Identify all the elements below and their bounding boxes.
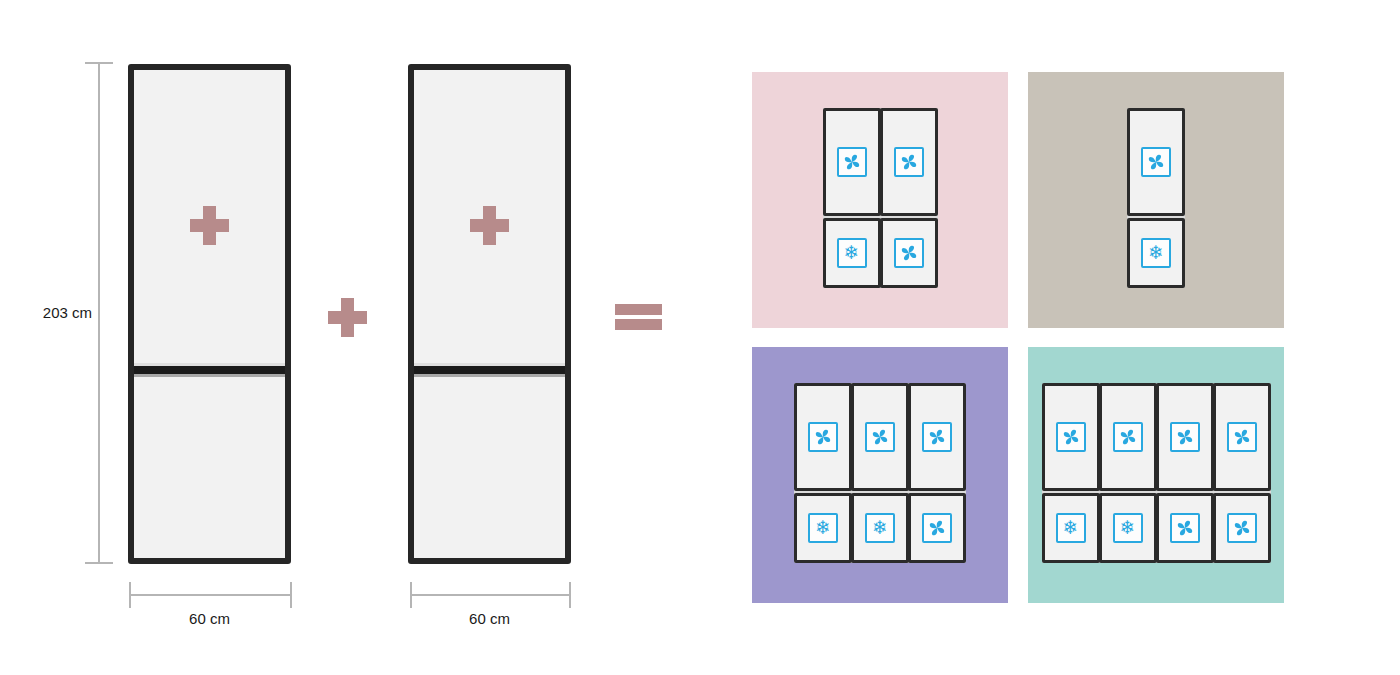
snowflake-glyph: ❄ [815,518,831,537]
fridge-door [1156,383,1214,491]
fan-icon [808,422,838,452]
snowflake-icon: ❄ [808,513,838,543]
snowflake-glyph: ❄ [872,518,888,537]
door-row-bottom: ❄❄ [794,493,966,563]
fridge-1-upper-door [134,70,285,363]
height-dimension-line [98,62,100,564]
fan-icon [922,513,952,543]
fridge-door [880,218,938,288]
fridge-door: ❄ [1042,493,1100,563]
door-row-top [794,383,966,491]
door-row-bottom: ❄ [823,218,938,288]
fridge-door [880,108,938,216]
door-row-bottom: ❄ [1127,218,1185,288]
fridge-door [794,383,852,491]
fridge-door: ❄ [823,218,881,288]
fridge-door: ❄ [851,493,909,563]
fan-icon [1056,422,1086,452]
snowflake-icon: ❄ [865,513,895,543]
fridge-2-divider-band [414,366,565,374]
fan-icon [922,422,952,452]
door-row-top [1127,108,1185,216]
fridge-door [1213,383,1271,491]
result-four-column-combo: ❄❄ [1028,347,1284,603]
fan-icon [1170,513,1200,543]
fridge-door [908,383,966,491]
width-dimension-1-label: 60 cm [128,609,291,629]
fridge-door [1127,108,1185,216]
height-dimension-top-tick [85,62,113,64]
fridge-2-outline [408,64,571,564]
result-two-column-combo: ❄ [752,72,1008,328]
snowflake-glyph: ❄ [1148,243,1164,262]
equals-operator-icon [615,304,662,330]
fan-icon [1227,422,1257,452]
width-dimension-2-label: 60 cm [408,609,571,629]
snowflake-glyph: ❄ [1120,518,1136,537]
fridge-1-lower-door [134,377,285,558]
snowflake-icon: ❄ [837,238,867,268]
fan-icon [1170,422,1200,452]
height-dimension-label: 203 cm [28,303,92,323]
fridge-door [908,493,966,563]
result-two-column-combo-fridge-block: ❄ [823,108,938,288]
fridge-door [851,383,909,491]
fan-icon [1113,422,1143,452]
fridge-2-upper-door [414,70,565,363]
fridge-door [1213,493,1271,563]
snowflake-icon: ❄ [1113,513,1143,543]
width-dimension-2-line [410,594,571,596]
fridge-door [823,108,881,216]
result-four-column-combo-fridge-block: ❄❄ [1042,383,1271,563]
fridge-1-outline [128,64,291,564]
snowflake-glyph: ❄ [1063,518,1079,537]
fridge-2-lower-door [414,377,565,558]
snowflake-icon: ❄ [1141,238,1171,268]
fan-icon [894,147,924,177]
fridge-door [1099,383,1157,491]
fan-icon [894,238,924,268]
width-dimension-1-line [129,594,292,596]
fridge-1-divider-band [134,366,285,374]
fridge-door: ❄ [794,493,852,563]
result-single-column-fridge-block: ❄ [1127,108,1185,288]
plus-operator-icon [328,298,367,337]
snowflake-glyph: ❄ [844,243,860,262]
door-row-bottom: ❄❄ [1042,493,1271,563]
fan-icon [837,147,867,177]
fridge-door: ❄ [1099,493,1157,563]
equals-bar [615,319,662,330]
plus-icon [470,206,509,245]
door-row-top [823,108,938,216]
result-three-column-combo: ❄❄ [752,347,1008,603]
height-dimension-bottom-tick [85,562,113,564]
door-row-top [1042,383,1271,491]
result-single-column: ❄ [1028,72,1284,328]
fridge-door: ❄ [1127,218,1185,288]
result-three-column-combo-fridge-block: ❄❄ [794,383,966,563]
snowflake-icon: ❄ [1056,513,1086,543]
equals-bar [615,304,662,315]
plus-icon [190,206,229,245]
fan-icon [1141,147,1171,177]
fan-icon [1227,513,1257,543]
fridge-configuration-infographic: 203 cm 60 cm 60 cm [0,0,1400,675]
fridge-door [1156,493,1214,563]
fan-icon [865,422,895,452]
fridge-door [1042,383,1100,491]
